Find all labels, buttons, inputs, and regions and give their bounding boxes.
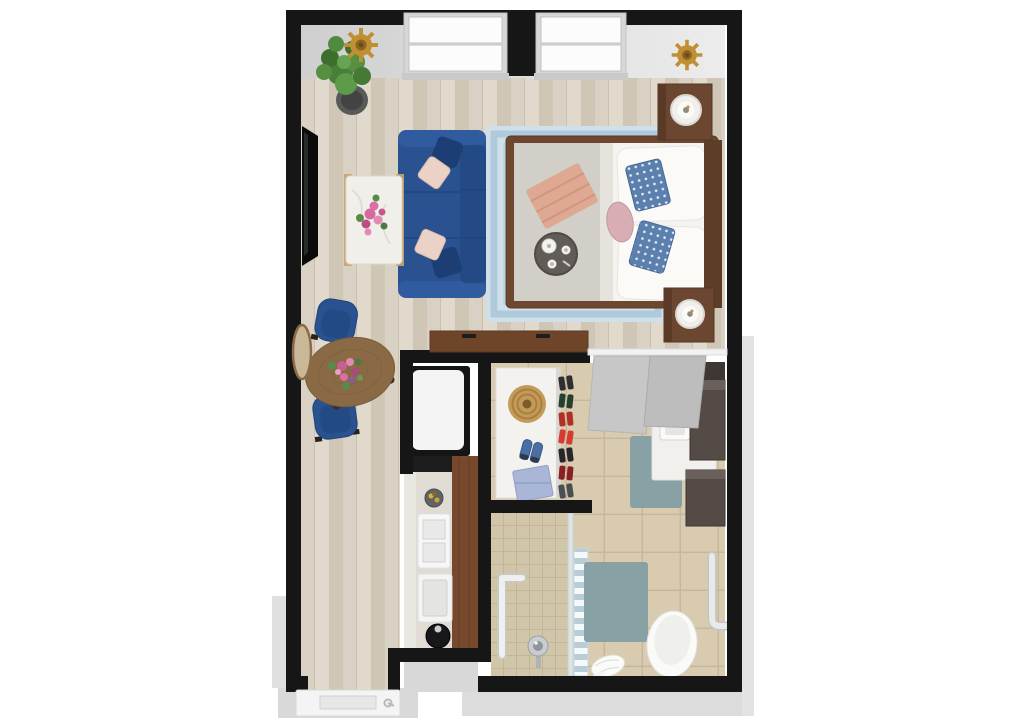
credenza-handle	[462, 334, 476, 338]
gold-medallion	[672, 40, 703, 71]
counter-side	[404, 472, 416, 648]
outer-wall-right	[742, 336, 754, 716]
woven-basket	[508, 385, 546, 423]
outer-wall-left	[272, 596, 286, 688]
wall-right	[727, 10, 742, 692]
gold-medallion	[344, 28, 378, 62]
wall-closet-bath	[478, 500, 592, 513]
table-lamp	[671, 95, 701, 125]
floor-plan-page	[0, 0, 1024, 724]
nightstand-top	[658, 84, 712, 140]
floor-plan-rendering	[0, 0, 1024, 724]
wall-kitchen-stub	[400, 350, 413, 474]
door-track	[588, 349, 727, 355]
credenza-handle	[536, 334, 550, 338]
wall-tv	[302, 126, 318, 266]
door-panel	[644, 356, 706, 428]
glass-partition	[568, 513, 573, 676]
breakfast-tray	[535, 233, 577, 275]
window-2	[534, 13, 628, 80]
headboard	[704, 140, 722, 308]
nightstand-bottom	[664, 288, 714, 342]
kitchen-sink	[418, 514, 450, 568]
table-lamp	[676, 300, 704, 328]
credenza	[430, 331, 588, 352]
outer-wall-bottom	[462, 692, 754, 716]
entry-door	[296, 690, 400, 716]
window-pier	[507, 10, 536, 76]
wood-bar-counter	[452, 456, 478, 662]
door-panel-inset	[320, 696, 376, 709]
wall-kitchen-bottom	[400, 648, 491, 662]
sofa-armrest-bottom	[398, 281, 486, 298]
bath-rug	[584, 562, 648, 642]
wall-bath-bottom	[478, 676, 742, 692]
window-1	[402, 13, 509, 80]
sofa	[398, 130, 486, 298]
cooktop	[418, 574, 452, 622]
fruit-bowl	[425, 489, 443, 507]
kitchenette	[404, 366, 478, 662]
round-basin	[426, 624, 450, 648]
bed	[506, 136, 722, 308]
round-wall-mirror	[293, 325, 311, 379]
door-panel	[588, 356, 652, 434]
wall-entry-right-post	[388, 648, 400, 692]
outer-wall-step	[404, 662, 478, 692]
storage-box	[512, 465, 553, 502]
coffee-table	[344, 174, 404, 266]
